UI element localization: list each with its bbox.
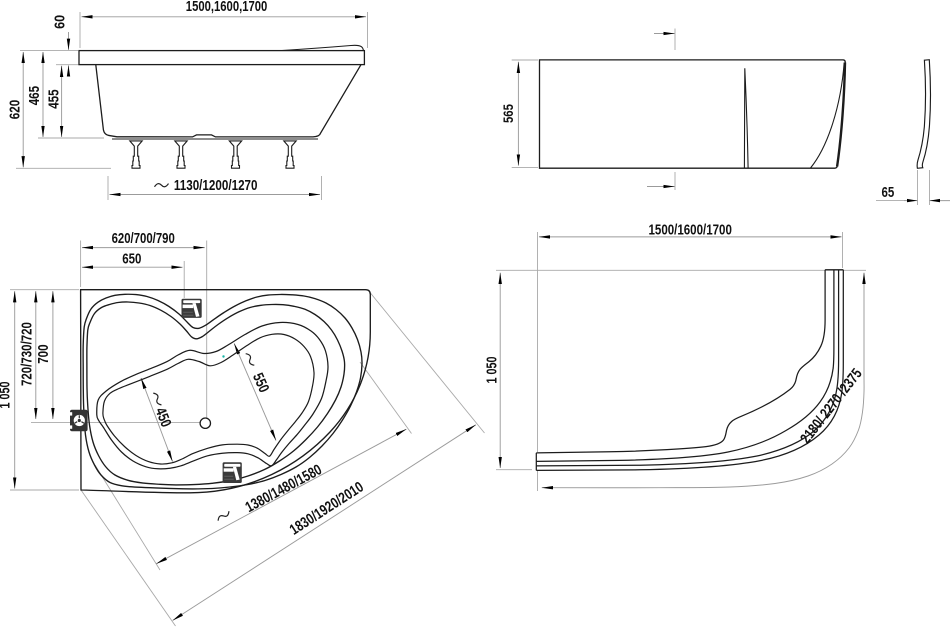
svg-text:1500/1600/1700: 1500/1600/1700 bbox=[649, 221, 732, 238]
svg-text:1 050: 1 050 bbox=[483, 357, 500, 384]
svg-text:60: 60 bbox=[50, 15, 67, 29]
svg-text:455: 455 bbox=[45, 89, 62, 109]
svg-text:700: 700 bbox=[35, 344, 52, 363]
svg-text:1130/1200/1270: 1130/1200/1270 bbox=[174, 176, 258, 193]
svg-text:650: 650 bbox=[122, 250, 141, 267]
svg-text:620: 620 bbox=[6, 100, 23, 119]
svg-text:450: 450 bbox=[152, 405, 175, 429]
svg-text:65: 65 bbox=[882, 184, 895, 201]
svg-text:1 050: 1 050 bbox=[0, 382, 13, 409]
svg-text:550: 550 bbox=[250, 370, 273, 395]
svg-text:620/700/790: 620/700/790 bbox=[112, 229, 175, 246]
svg-text:1500,1600,1700: 1500,1600,1700 bbox=[186, 0, 268, 14]
svg-text:720/730/720: 720/730/720 bbox=[18, 322, 35, 386]
svg-text:465: 465 bbox=[26, 85, 43, 105]
svg-text:565: 565 bbox=[500, 104, 516, 123]
